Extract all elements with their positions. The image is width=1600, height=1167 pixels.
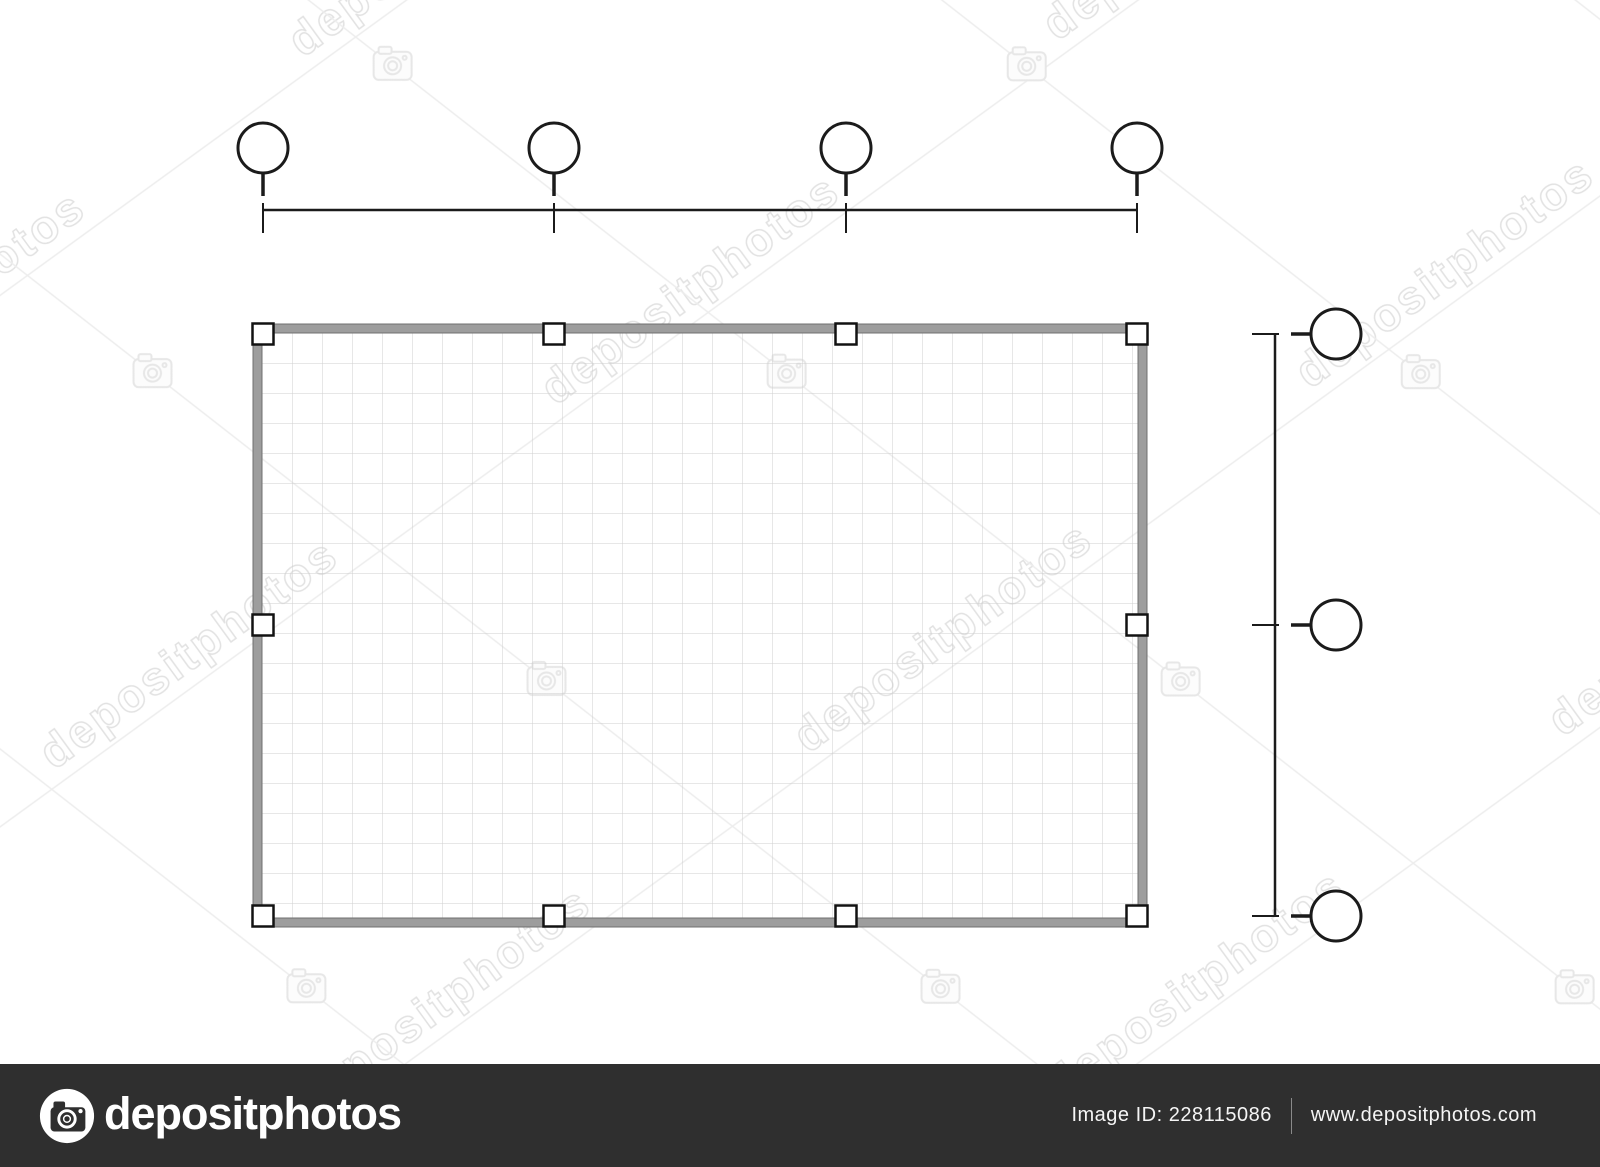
axis-bubble bbox=[1311, 309, 1361, 359]
wall-bottom bbox=[253, 918, 1147, 927]
image-id-text: Image ID: 228115086 bbox=[1071, 1104, 1271, 1127]
axis-bubble bbox=[529, 123, 579, 173]
stock-image-canvas: depositphotos bbox=[0, 0, 1600, 1167]
footer-divider bbox=[1291, 1098, 1292, 1134]
camera-logo-icon bbox=[38, 1087, 96, 1145]
column-marker bbox=[836, 324, 857, 345]
column-axis-marker bbox=[238, 123, 288, 233]
logo-wordmark: depositphotos bbox=[104, 1088, 401, 1140]
floor-grid bbox=[262, 333, 1138, 918]
floor-plan-drawing bbox=[0, 0, 1600, 1064]
column-marker bbox=[544, 324, 565, 345]
column-marker bbox=[253, 615, 274, 636]
footer-meta: Image ID: 228115086 www.depositphotos.co… bbox=[1071, 1098, 1537, 1134]
column-marker bbox=[836, 906, 857, 927]
row-axis-marker bbox=[1252, 600, 1361, 650]
column-axis-marker bbox=[529, 123, 579, 233]
column-marker bbox=[253, 324, 274, 345]
column-marker bbox=[253, 906, 274, 927]
wall-top bbox=[253, 324, 1147, 333]
row-axis-marker bbox=[1252, 891, 1361, 941]
right-axis-column bbox=[1252, 309, 1361, 941]
axis-bubble bbox=[1311, 891, 1361, 941]
website-url-text: www.depositphotos.com bbox=[1311, 1104, 1537, 1127]
axis-bubble bbox=[238, 123, 288, 173]
column-axis-marker bbox=[821, 123, 871, 233]
column-marker bbox=[1127, 906, 1148, 927]
column-axis-marker bbox=[1112, 123, 1162, 233]
axis-bubble bbox=[1311, 600, 1361, 650]
axis-bubble bbox=[1112, 123, 1162, 173]
top-axis-row bbox=[238, 123, 1162, 233]
column-marker bbox=[544, 906, 565, 927]
axis-bubble bbox=[821, 123, 871, 173]
footer-bar: depositphotos Image ID: 228115086 www.de… bbox=[0, 1064, 1600, 1167]
column-marker bbox=[1127, 615, 1148, 636]
row-axis-marker bbox=[1252, 309, 1361, 359]
depositphotos-logo: depositphotos bbox=[38, 1087, 401, 1145]
column-marker bbox=[1127, 324, 1148, 345]
